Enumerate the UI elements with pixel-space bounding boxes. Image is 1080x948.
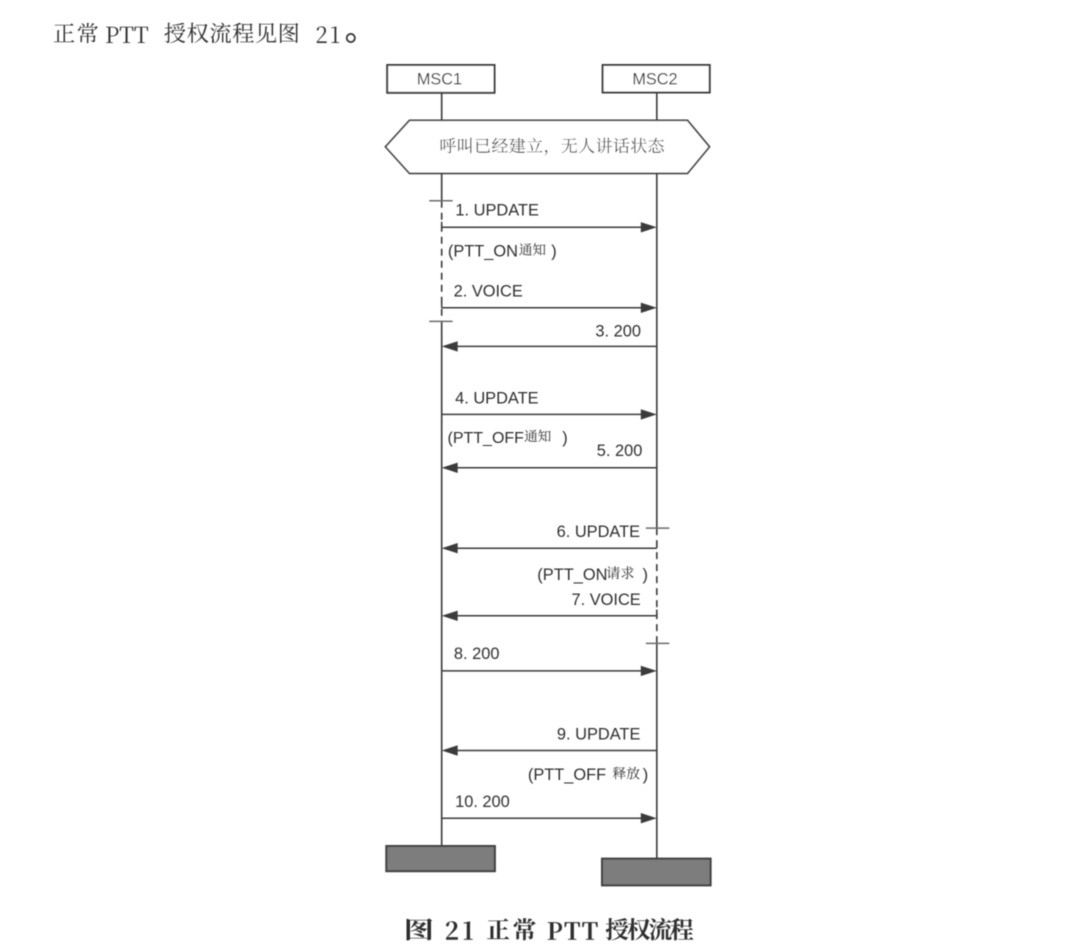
svg-text:MSC2: MSC2 xyxy=(632,71,677,89)
svg-text:3. 200: 3. 200 xyxy=(595,323,641,341)
svg-text:(PTT_OFF: (PTT_OFF xyxy=(448,430,525,447)
svg-text:): ) xyxy=(643,566,648,584)
svg-text:): ) xyxy=(551,242,556,260)
svg-text:9. UPDATE: 9. UPDATE xyxy=(557,726,641,744)
svg-text:1. UPDATE: 1. UPDATE xyxy=(455,202,539,220)
svg-text:5. 200: 5. 200 xyxy=(597,442,643,460)
svg-text:4. UPDATE: 4. UPDATE xyxy=(455,389,539,407)
svg-text:6. UPDATE: 6. UPDATE xyxy=(557,523,641,541)
svg-text:(PTT_ON: (PTT_ON xyxy=(448,242,518,260)
svg-text:10. 200: 10. 200 xyxy=(455,793,510,811)
svg-text:7. VOICE: 7. VOICE xyxy=(572,591,641,609)
svg-text:): ) xyxy=(562,429,567,447)
svg-text:8. 200: 8. 200 xyxy=(454,645,500,663)
svg-text:(PTT_OFF: (PTT_OFF xyxy=(528,766,606,784)
svg-text:MSC1: MSC1 xyxy=(417,71,462,89)
svg-text:): ) xyxy=(643,766,648,784)
svg-text:(PTT_ON: (PTT_ON xyxy=(537,566,607,584)
svg-text:2. VOICE: 2. VOICE xyxy=(454,283,523,301)
